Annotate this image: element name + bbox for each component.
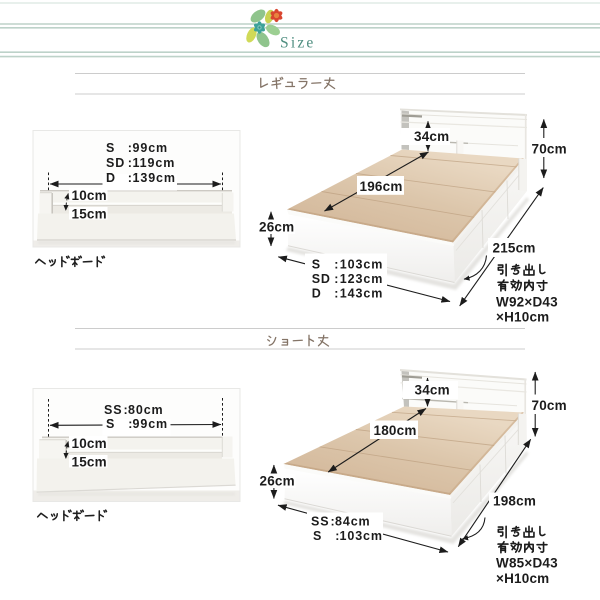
svg-text:123cm: 123cm <box>340 272 383 286</box>
svg-text:34cm: 34cm <box>415 383 450 398</box>
svg-text:10cm: 10cm <box>72 188 107 203</box>
svg-text:SS: SS <box>104 403 122 417</box>
svg-text:×H10cm: ×H10cm <box>496 571 549 586</box>
svg-text:W92×D43: W92×D43 <box>496 295 558 310</box>
svg-text:215cm: 215cm <box>493 241 536 256</box>
svg-text::: : <box>334 287 339 301</box>
svg-text:70cm: 70cm <box>532 398 567 413</box>
svg-text:34cm: 34cm <box>414 129 449 144</box>
svg-text:99cm: 99cm <box>133 417 169 431</box>
svg-text:Size: Size <box>280 35 316 52</box>
svg-text:99cm: 99cm <box>133 141 169 155</box>
svg-text:139cm: 139cm <box>133 171 176 185</box>
svg-text:×H10cm: ×H10cm <box>496 310 549 325</box>
svg-text:26cm: 26cm <box>260 474 295 489</box>
svg-text:S: S <box>313 529 322 543</box>
svg-text:SS: SS <box>311 515 329 529</box>
svg-text:119cm: 119cm <box>133 156 176 170</box>
svg-text::: : <box>334 257 339 271</box>
svg-text:103cm: 103cm <box>340 257 383 271</box>
svg-text:198cm: 198cm <box>493 494 536 509</box>
svg-text:103cm: 103cm <box>340 529 383 543</box>
svg-text:SD: SD <box>106 156 125 170</box>
svg-text:143cm: 143cm <box>340 287 383 301</box>
svg-text:196cm: 196cm <box>360 179 403 194</box>
svg-text:S: S <box>106 417 115 431</box>
svg-text:10cm: 10cm <box>72 436 107 451</box>
svg-text::: : <box>334 272 339 286</box>
svg-text:180cm: 180cm <box>374 423 417 438</box>
svg-text:W85×D43: W85×D43 <box>496 556 558 571</box>
svg-text:15cm: 15cm <box>72 455 107 470</box>
svg-text:S: S <box>106 141 115 155</box>
svg-text:15cm: 15cm <box>72 207 107 222</box>
svg-text:D: D <box>106 171 116 185</box>
svg-text:26cm: 26cm <box>259 220 294 235</box>
svg-text:D: D <box>312 287 322 301</box>
svg-text:70cm: 70cm <box>532 141 567 156</box>
svg-text:SD: SD <box>312 272 331 286</box>
svg-text:80cm: 80cm <box>128 403 164 417</box>
svg-text:S: S <box>312 257 321 271</box>
svg-text:84cm: 84cm <box>335 515 371 529</box>
